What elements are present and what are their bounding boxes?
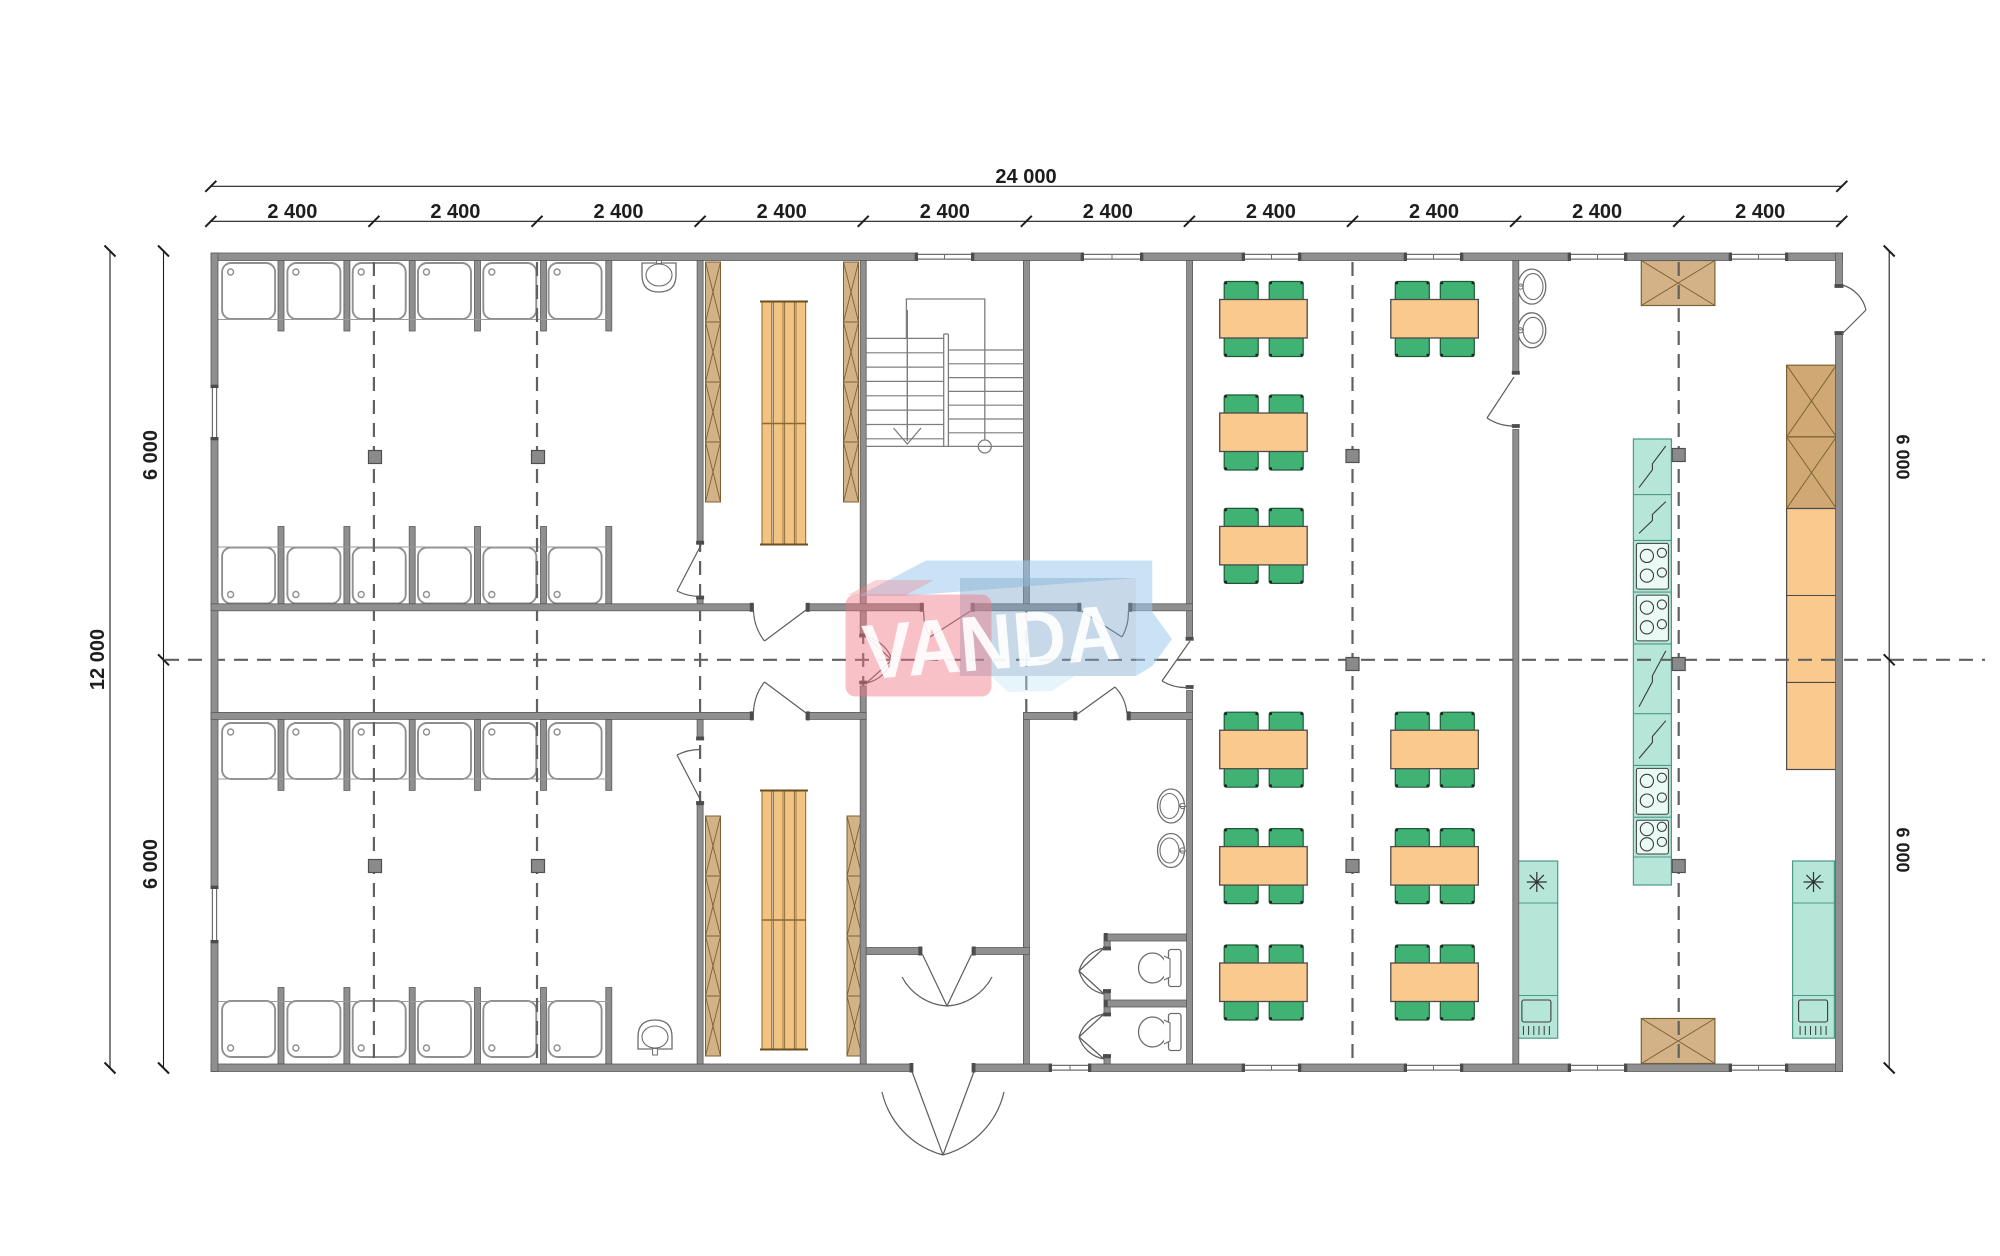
svg-text:2 400: 2 400 xyxy=(267,201,317,223)
svg-text:24 000: 24 000 xyxy=(995,166,1056,188)
svg-text:12 000: 12 000 xyxy=(87,629,109,690)
svg-text:6 000: 6 000 xyxy=(140,430,162,480)
svg-text:2 400: 2 400 xyxy=(593,201,643,223)
svg-text:2 400: 2 400 xyxy=(1409,201,1459,223)
svg-text:2 400: 2 400 xyxy=(1572,201,1622,223)
svg-text:6 000: 6 000 xyxy=(140,839,162,889)
svg-text:6 000: 6 000 xyxy=(1893,827,1913,872)
svg-text:2 400: 2 400 xyxy=(1735,201,1785,223)
svg-text:2 400: 2 400 xyxy=(757,201,807,223)
svg-text:2 400: 2 400 xyxy=(430,201,480,223)
svg-text:2 400: 2 400 xyxy=(920,201,970,223)
svg-text:2 400: 2 400 xyxy=(1246,201,1296,223)
svg-text:2 400: 2 400 xyxy=(1083,201,1133,223)
svg-text:6 000: 6 000 xyxy=(1893,434,1913,479)
